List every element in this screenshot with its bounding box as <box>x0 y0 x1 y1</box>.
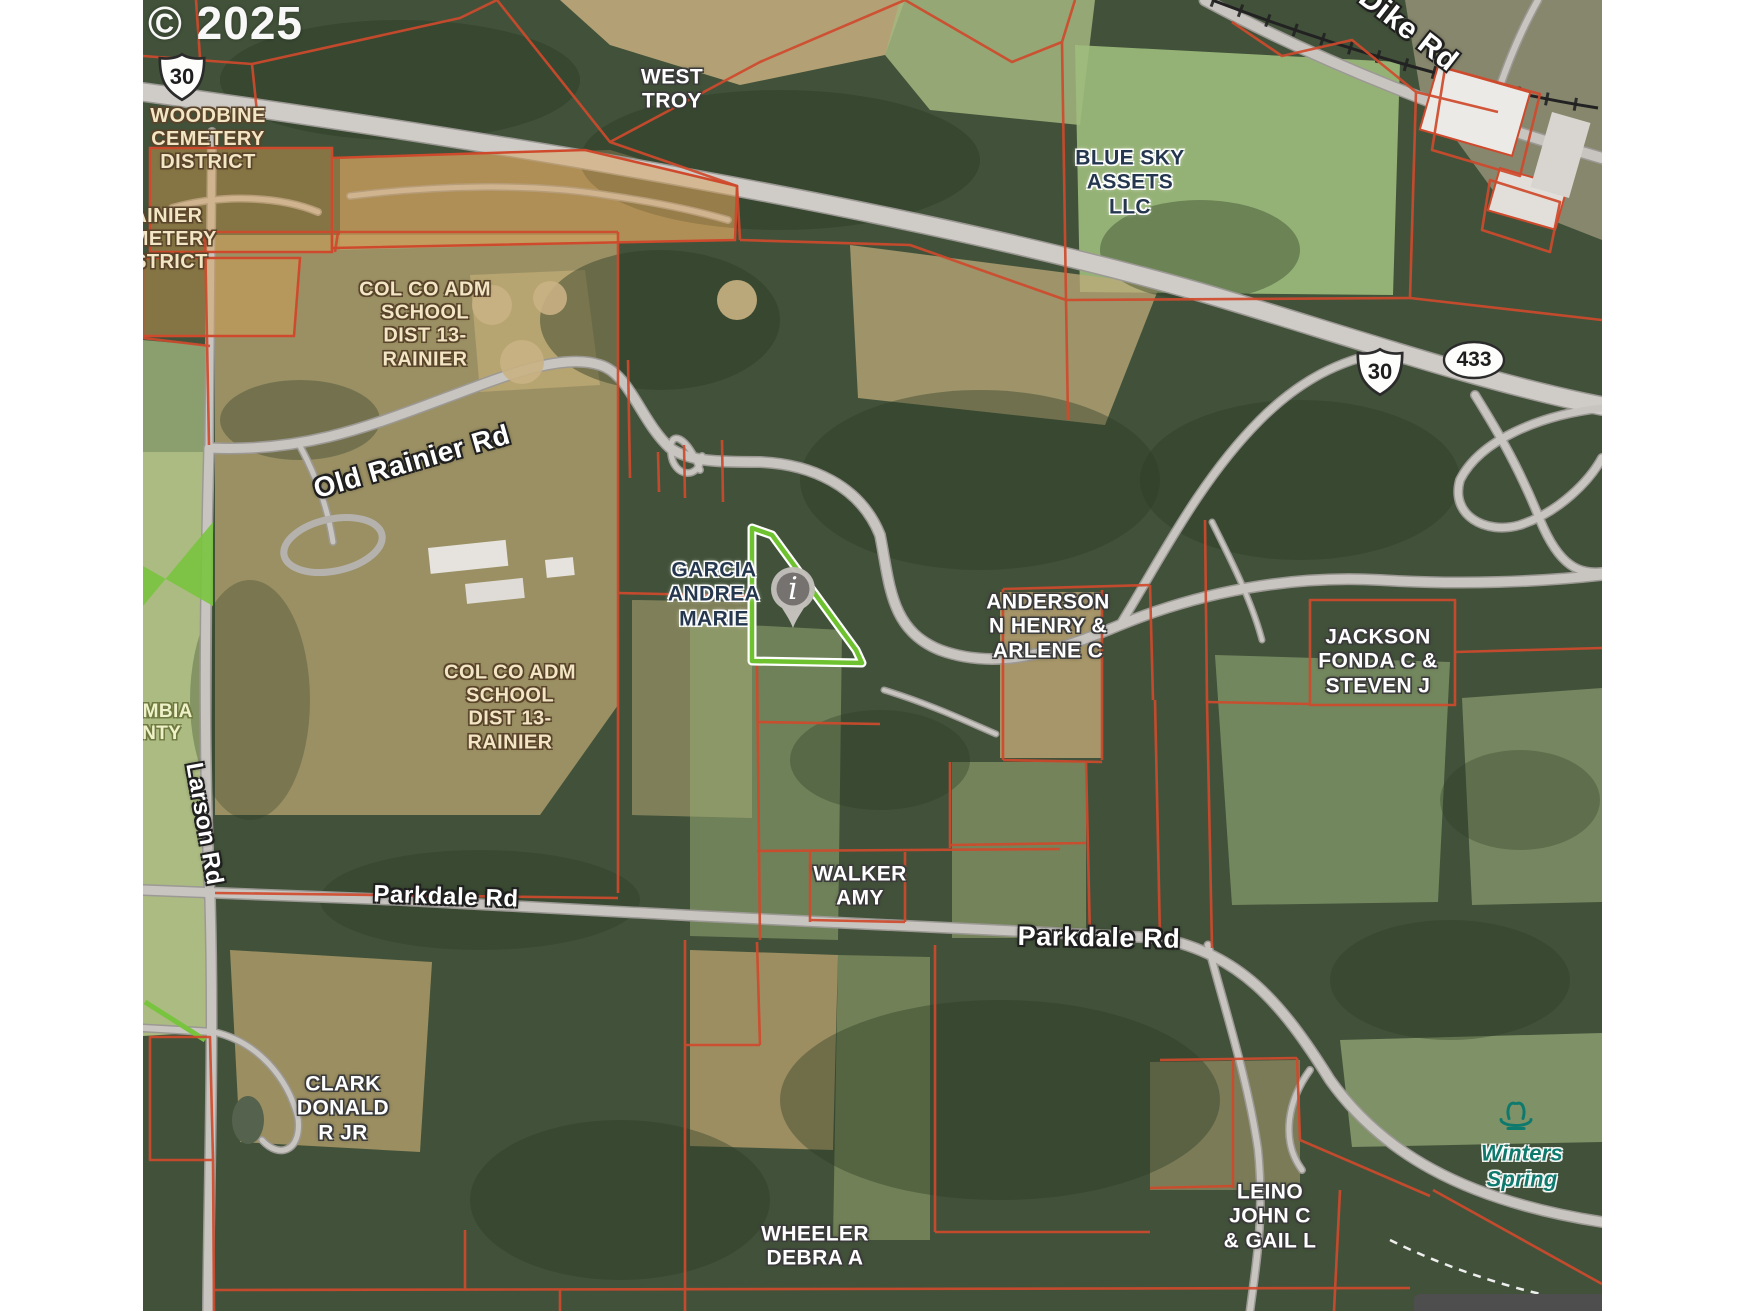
map-info-marker[interactable]: i <box>768 565 818 631</box>
info-pin-icon: i <box>768 565 818 631</box>
aerial-terrain <box>143 0 1602 1311</box>
info-glyph: i <box>788 571 798 607</box>
bottom-dark-bar <box>1414 1294 1602 1311</box>
map-viewport[interactable]: Dike RdOld Rainier RdLarson RdParkdale R… <box>143 0 1602 1311</box>
dashed-driveway <box>1390 1240 1545 1295</box>
gis-map-page: Dike RdOld Rainier RdLarson RdParkdale R… <box>0 0 1748 1311</box>
